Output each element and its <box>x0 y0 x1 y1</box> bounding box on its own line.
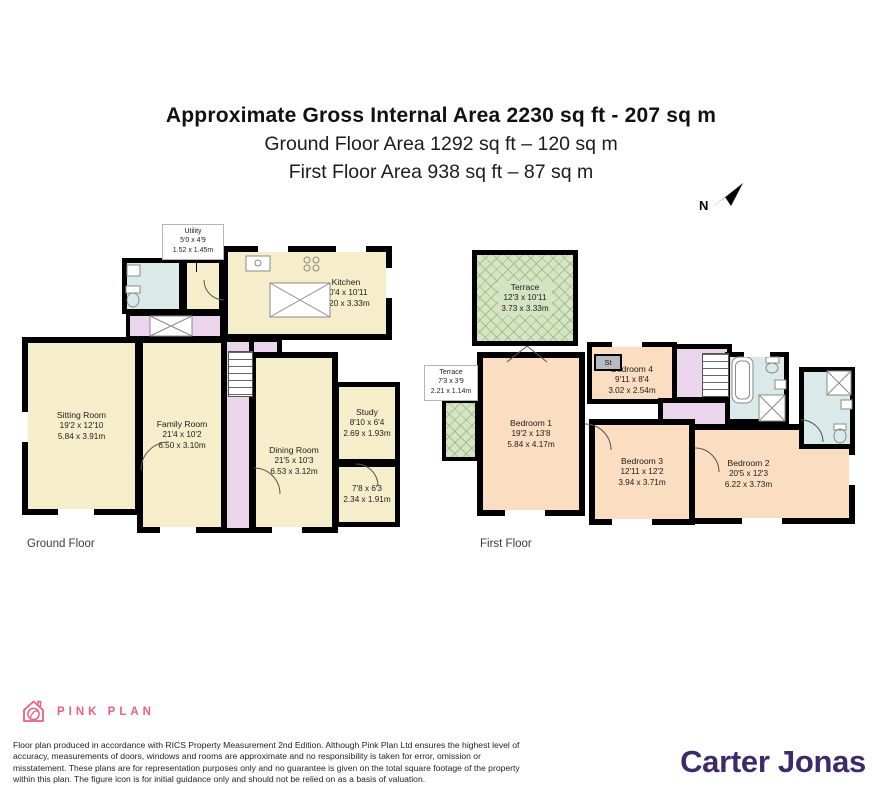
room-label: Study 8'10 x 6'4 2.69 x 1.93m <box>343 407 390 439</box>
utility-callout: Utility 5'0 x 4'9 1.52 x 1.45m <box>162 224 224 260</box>
carter-jonas-logo: Carter Jonas <box>680 744 866 780</box>
room-study: Study 8'10 x 6'4 2.69 x 1.93m <box>334 382 400 464</box>
window <box>336 246 366 252</box>
terrace-left <box>442 399 479 461</box>
window <box>272 527 302 533</box>
utility-leader-line <box>196 260 197 272</box>
room-label: Bedroom 3 12'11 x 12'2 3.94 x 3.71m <box>618 456 665 488</box>
window <box>744 352 770 357</box>
room-utility <box>182 258 224 314</box>
disclaimer-text: Floor plan produced in accordance with R… <box>13 740 533 786</box>
room-bathroom <box>725 352 789 424</box>
gross-area-title: Approximate Gross Internal Area 2230 sq … <box>0 104 882 128</box>
pink-plan-text: PINK PLAN <box>57 706 155 718</box>
header: Approximate Gross Internal Area 2230 sq … <box>0 104 882 184</box>
window <box>58 509 94 515</box>
north-label: N <box>699 198 708 213</box>
room-bedroom3: Bedroom 3 12'11 x 12'2 3.94 x 3.71m <box>589 419 695 525</box>
window <box>22 412 28 442</box>
room-label: 7'8 x 6'3 2.34 x 1.91m <box>343 484 390 505</box>
window <box>258 246 288 252</box>
room-label: Family Room 21'4 x 10'2 6.50 x 3.10m <box>157 419 208 451</box>
room-shower-room <box>799 367 855 449</box>
pink-plan-logo: PINK PLAN <box>20 698 155 725</box>
north-compass: N <box>697 180 749 220</box>
window <box>612 342 642 347</box>
room-label: Kitchen 20'4 x 10'11 6.20 x 3.33m <box>244 277 369 309</box>
window <box>386 268 392 298</box>
room-family: Family Room 21'4 x 10'2 6.50 x 3.10m <box>137 337 227 533</box>
room-label: Sitting Room 19'2 x 12'10 5.84 x 3.91m <box>57 410 106 442</box>
storage-cupboard: St <box>594 354 622 371</box>
first-floor-area: First Floor Area 938 sq ft – 87 sq m <box>0 161 882 184</box>
room-bedroom1: Bedroom 1 19'2 x 13'8 5.84 x 4.17m <box>477 352 585 516</box>
room-store: 7'8 x 6'3 2.34 x 1.91m <box>334 462 400 527</box>
room-bedroom4: Bedroom 4 9'11 x 8'4 3.02 x 2.54m <box>587 342 677 404</box>
room-wc <box>122 258 184 314</box>
room-kitchen: Kitchen 20'4 x 10'11 6.20 x 3.33m <box>222 246 392 340</box>
room-label: Bedroom 1 19'2 x 13'8 5.84 x 4.17m <box>507 418 554 450</box>
pink-plan-house-icon <box>20 698 47 725</box>
window <box>742 518 782 524</box>
room-dining: Dining Room 21'5 x 10'3 6.53 x 3.12m <box>250 352 338 533</box>
stairs-ground <box>228 351 253 397</box>
ground-floor-area: Ground Floor Area 1292 sq ft – 120 sq m <box>0 133 882 156</box>
stairs-first <box>702 353 729 397</box>
hallway-ground-top <box>126 312 224 340</box>
terrace-callout: Terrace 7'3 x 3'9 2.21 x 1.14m <box>424 365 478 401</box>
window <box>849 455 855 485</box>
ground-floor-caption: Ground Floor <box>27 538 95 550</box>
terrace-top: Terrace 12'3 x 10'11 3.73 x 3.33m <box>472 250 578 346</box>
room-label: Bedroom 2 20'5 x 12'3 6.22 x 3.73m <box>725 458 818 490</box>
room-sitting: Sitting Room 19'2 x 12'10 5.84 x 3.91m <box>22 337 141 515</box>
room-label: Dining Room 21'5 x 10'3 6.53 x 3.12m <box>269 407 319 477</box>
window <box>505 510 545 516</box>
window <box>612 519 652 525</box>
room-label: Terrace 12'3 x 10'11 3.73 x 3.33m <box>498 281 551 315</box>
first-floor-caption: First Floor <box>480 538 532 550</box>
window <box>160 527 196 533</box>
